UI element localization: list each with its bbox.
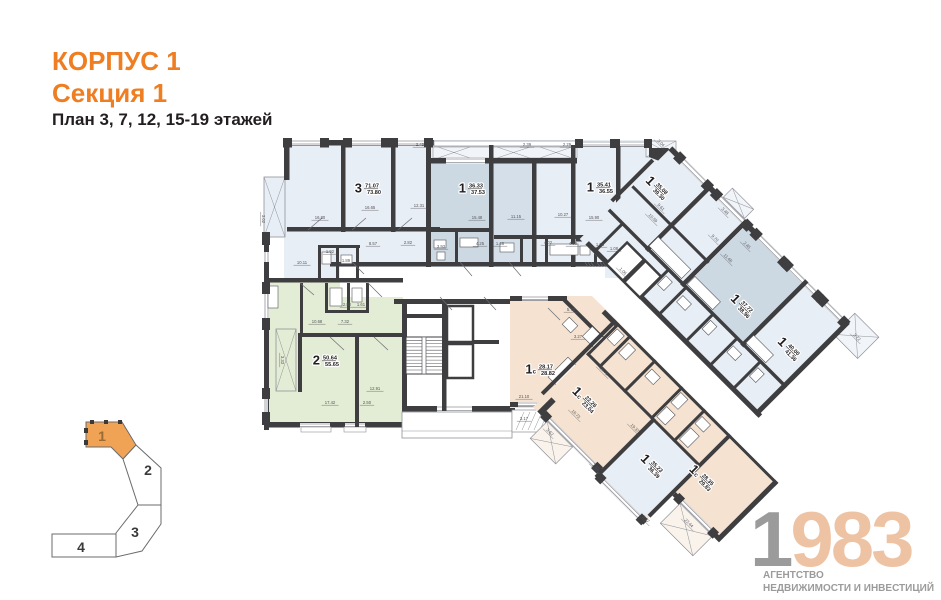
svg-text:10.27: 10.27: [558, 212, 569, 217]
svg-text:4: 4: [77, 539, 85, 555]
svg-text:5.79: 5.79: [567, 307, 576, 312]
svg-text:16.65: 16.65: [365, 205, 376, 210]
svg-text:37.53: 37.53: [471, 190, 485, 196]
svg-text:12.91: 12.91: [370, 386, 381, 391]
svg-text:73.80: 73.80: [367, 190, 381, 196]
svg-text:12.31: 12.31: [414, 203, 425, 208]
svg-text:28.82: 28.82: [541, 371, 555, 377]
svg-text:3.02: 3.02: [261, 215, 266, 224]
svg-text:1.08: 1.08: [610, 246, 619, 251]
svg-text:1: 1: [98, 428, 106, 444]
svg-text:1.46: 1.46: [496, 241, 505, 246]
svg-text:55.65: 55.65: [325, 362, 339, 368]
svg-text:3.17: 3.17: [520, 416, 529, 421]
svg-text:1.92: 1.92: [326, 249, 335, 254]
svg-text:1: 1: [587, 180, 594, 195]
svg-text:4.20: 4.20: [569, 241, 578, 246]
svg-text:15.90: 15.90: [589, 215, 600, 220]
svg-text:16.80: 16.80: [315, 215, 326, 220]
svg-text:2: 2: [313, 353, 320, 368]
svg-text:1: 1: [459, 181, 466, 196]
svg-text:2.45: 2.45: [416, 142, 425, 147]
svg-text:3: 3: [131, 524, 139, 540]
svg-text:36.55: 36.55: [599, 189, 613, 195]
svg-text:7.32: 7.32: [341, 319, 350, 324]
svg-text:КОРПУС 1: КОРПУС 1: [52, 46, 181, 76]
svg-text:План 3, 7, 12, 15-19 этажей: План 3, 7, 12, 15-19 этажей: [52, 110, 273, 129]
svg-text:1.08: 1.08: [596, 242, 605, 247]
svg-text:4.02: 4.02: [544, 240, 553, 245]
svg-text:15.48: 15.48: [472, 215, 483, 220]
svg-text:11.15: 11.15: [511, 214, 522, 219]
svg-text:8.57: 8.57: [369, 241, 378, 246]
svg-text:1.61: 1.61: [357, 302, 366, 307]
svg-text:3.33: 3.33: [280, 356, 285, 365]
svg-text:2.50: 2.50: [363, 400, 372, 405]
svg-text:2.29: 2.29: [563, 142, 572, 147]
svg-text:21.10: 21.10: [519, 394, 530, 399]
svg-text:НЕДВИЖИМОСТИ И ИНВЕСТИЦИЙ: НЕДВИЖИМОСТИ И ИНВЕСТИЦИЙ: [763, 581, 934, 594]
svg-text:3: 3: [355, 181, 362, 196]
svg-text:3.27: 3.27: [574, 334, 583, 339]
svg-text:Секция 1: Секция 1: [52, 78, 167, 108]
svg-text:1.89: 1.89: [342, 258, 351, 263]
svg-text:17.42: 17.42: [325, 400, 336, 405]
svg-text:3.93: 3.93: [437, 244, 446, 249]
svg-text:10.11: 10.11: [297, 260, 308, 265]
svg-text:10.68: 10.68: [312, 319, 323, 324]
svg-text:АГЕНТСТВО: АГЕНТСТВО: [763, 570, 824, 581]
svg-text:4.25: 4.25: [476, 241, 485, 246]
svg-text:2.80: 2.80: [343, 302, 352, 307]
svg-text:2.82: 2.82: [404, 240, 413, 245]
svg-text:2.39: 2.39: [523, 142, 532, 147]
svg-text:2: 2: [144, 462, 152, 478]
